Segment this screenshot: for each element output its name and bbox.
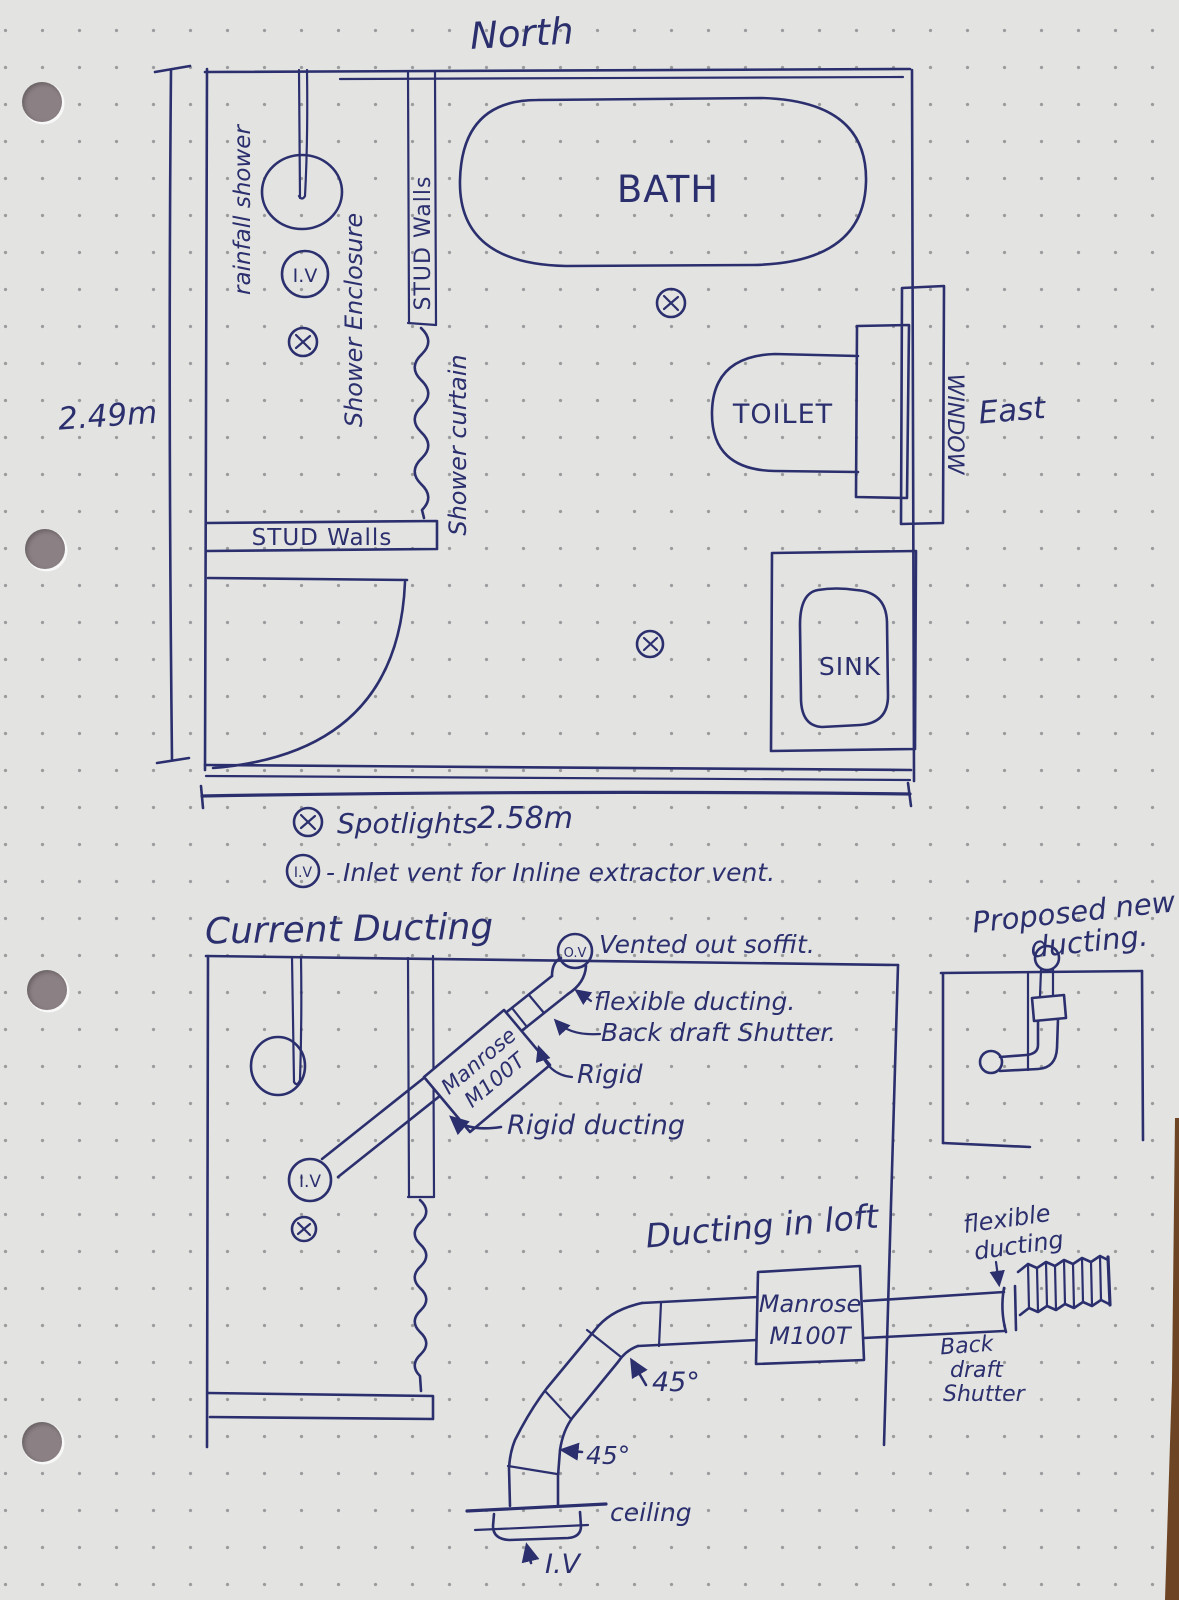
rainfall-shower-label: rainfall shower [230, 124, 256, 295]
cd-flexible-label: flexible ducting. [594, 987, 795, 1016]
cd-outlet-vent-text: O.V [564, 946, 587, 961]
wall-top-second-stroke [340, 77, 903, 79]
sink-label: SINK [819, 652, 881, 681]
cd-spotlight-symbol [292, 1217, 316, 1241]
spotlight-symbol-shower [289, 328, 317, 356]
spotlights-label: Spotlights [337, 807, 477, 840]
width-dim-label: 2.58m [477, 801, 573, 836]
pd-box-bottom [943, 1143, 1030, 1147]
inlet-vent-legend-text: I.V [294, 865, 313, 881]
pd-box-right [1142, 971, 1143, 1140]
stud-walls-vertical-label: STUD Walls [411, 176, 436, 311]
cd-shutter-line-1 [529, 995, 544, 1013]
proposed-ducting: Proposed new ducting. [941, 884, 1179, 1147]
ld-duct-left-top [642, 1297, 758, 1303]
shower-enclosure-label: Shower Enclosure [340, 213, 368, 427]
sink: SINK [771, 551, 916, 751]
stud-wall-horizontal: STUD Walls [207, 521, 437, 551]
window: WINDOW East [901, 286, 1049, 524]
pd-inlet-circle [980, 1051, 1002, 1073]
cd-inlet-vent-symbol: I.V [289, 1159, 331, 1201]
cd-rigid-ducting-label: Rigid ducting [507, 1110, 685, 1141]
ld-fan-label-2: M100T [769, 1322, 853, 1350]
spotlight-symbol-floor [637, 631, 663, 657]
cd-backdraft-arrow [556, 1021, 600, 1034]
spotlight-symbol-bath [657, 289, 685, 317]
north-label: North [469, 9, 575, 57]
ld-bend-joint-3 [508, 1466, 557, 1474]
ld-bend-outer [509, 1303, 642, 1506]
door-swing [208, 578, 407, 768]
ld-iv-label: I.V [545, 1549, 583, 1580]
inlet-vent-symbol-plan: I.V [282, 251, 328, 297]
cd-vented-out-label: Vented out soffit. [599, 930, 815, 959]
cd-shower-head [251, 957, 305, 1095]
inlet-vent-description: - Inlet vent for Inline extractor vent. [326, 858, 775, 887]
floor-plan: North 2.49m STUD Walls [57, 9, 1049, 808]
ld-shutter-line-2 [1015, 1286, 1016, 1330]
wall-bottom-second-stroke [206, 776, 910, 780]
cd-wall-left [207, 956, 208, 1447]
east-label: East [977, 390, 1049, 432]
height-dimension: 2.49m [57, 66, 190, 763]
spotlight-legend-symbol [294, 808, 322, 836]
pd-duct-edge-1 [1000, 1021, 1038, 1057]
legend: Spotlights 2.58m I.V - Inlet vent for In… [287, 801, 775, 887]
rainfall-shower-head [262, 70, 342, 229]
cd-outlet-vent-symbol: O.V [558, 934, 592, 968]
ld-angle2-arrow [563, 1450, 582, 1452]
ld-bend-inner [558, 1346, 638, 1506]
loft-title: Ducting in loft [644, 1196, 881, 1255]
bath: BATH [460, 98, 866, 266]
bath-label: BATH [617, 168, 719, 211]
ld-backdraft-label-1: Back [939, 1332, 995, 1361]
ld-angle1-label: 45° [652, 1367, 700, 1398]
ld-bend-joint-1 [587, 1330, 621, 1357]
cd-inlet-vent-text: I.V [299, 1172, 321, 1192]
toilet-label: TOILET [732, 399, 833, 430]
ld-shutter-line-1 [1002, 1288, 1006, 1332]
ld-angle1-arrow [632, 1361, 646, 1385]
ld-angle2-label: 45° [586, 1441, 630, 1470]
shower-curtain-line [415, 328, 429, 518]
wall-left [205, 69, 207, 770]
cd-wall-right [884, 965, 898, 1445]
ld-ceiling-label: ceiling [610, 1498, 692, 1527]
shower-curtain-label: Shower curtain [444, 354, 472, 535]
wall-top [205, 69, 910, 72]
ld-iv-arrow [527, 1546, 531, 1563]
ld-bend-joint-2 [546, 1392, 571, 1419]
loft-ducting: Ducting in loft Manrose M100T [467, 1196, 1110, 1580]
current-ducting-title: Current Ducting [205, 907, 494, 953]
ld-duct-right-top [864, 1292, 1004, 1301]
ld-duct-joint [659, 1303, 661, 1346]
stud-wall-vertical: STUD Walls [408, 71, 436, 325]
toilet: TOILET [712, 325, 909, 498]
ld-backdraft-label-2: draft [950, 1358, 1004, 1383]
window-label: WINDOW [942, 374, 967, 476]
ld-fan-box: Manrose M100T [756, 1266, 864, 1364]
cd-bottom-stud-wall [208, 1393, 433, 1419]
cd-curtain-line [415, 1200, 427, 1391]
ld-fan-label-1: Manrose [759, 1290, 861, 1318]
cd-rigid-label: Rigid [577, 1060, 643, 1090]
inlet-vent-legend-symbol: I.V [287, 855, 319, 887]
ld-duct-left-bottom [638, 1340, 757, 1346]
sketch-canvas: North 2.49m STUD Walls [0, 0, 1179, 1600]
height-dim-label: 2.49m [57, 395, 159, 438]
wall-bottom [205, 765, 911, 770]
cd-flexible-arrow [577, 991, 591, 1001]
notebook-page: North 2.49m STUD Walls [0, 0, 1179, 1600]
current-ducting: Current Ducting [205, 907, 898, 1447]
cd-elbow-edge-2 [568, 966, 586, 994]
ld-flexible-duct [1018, 1256, 1110, 1315]
cd-stud-line-1 [408, 958, 409, 1197]
ld-flexible-arrow [996, 1262, 999, 1284]
stud-walls-horizontal-label: STUD Walls [252, 525, 393, 551]
cd-backdraft-label: Back draft Shutter. [601, 1018, 836, 1047]
inlet-vent-text-plan: I.V [293, 265, 318, 287]
table-edge [1165, 1118, 1179, 1600]
ld-ceiling-line-1 [467, 1504, 606, 1511]
pd-fan-box [1032, 995, 1066, 1021]
ld-backdraft-label-3: Shutter [943, 1382, 1027, 1407]
wall-right [912, 70, 914, 781]
